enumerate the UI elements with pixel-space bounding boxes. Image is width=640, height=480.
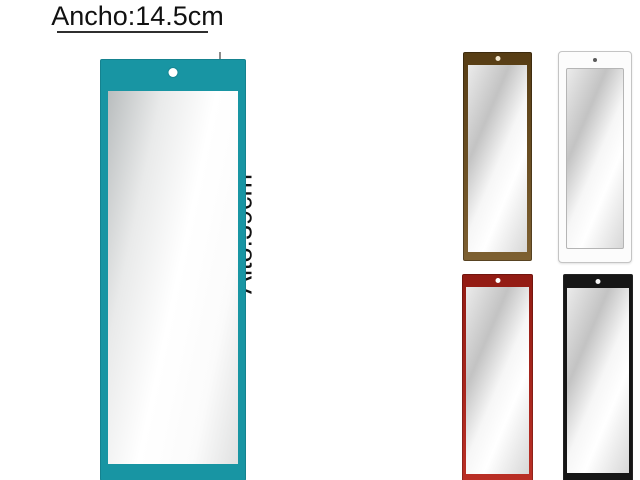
hanging-hole [169,68,178,77]
mirror-white [558,51,632,263]
mirror-glass [466,287,529,474]
mirror-black [563,274,633,480]
hanging-hole [593,58,597,62]
product-image: Ancho:14.5cm Alto:39cm [0,0,640,480]
hanging-hole [495,56,500,61]
width-dimension-label: Ancho:14.5cm [30,1,245,32]
main-mirror-teal [100,59,246,480]
width-dimension-line [57,31,208,33]
hanging-hole [596,279,601,284]
mirror-red [462,274,533,480]
mirror-glass [468,65,527,252]
mirror-brown [463,52,532,261]
mirror-glass [108,91,238,464]
mirror-glass [567,288,629,473]
mirror-glass [566,68,624,249]
hanging-hole [495,278,500,283]
